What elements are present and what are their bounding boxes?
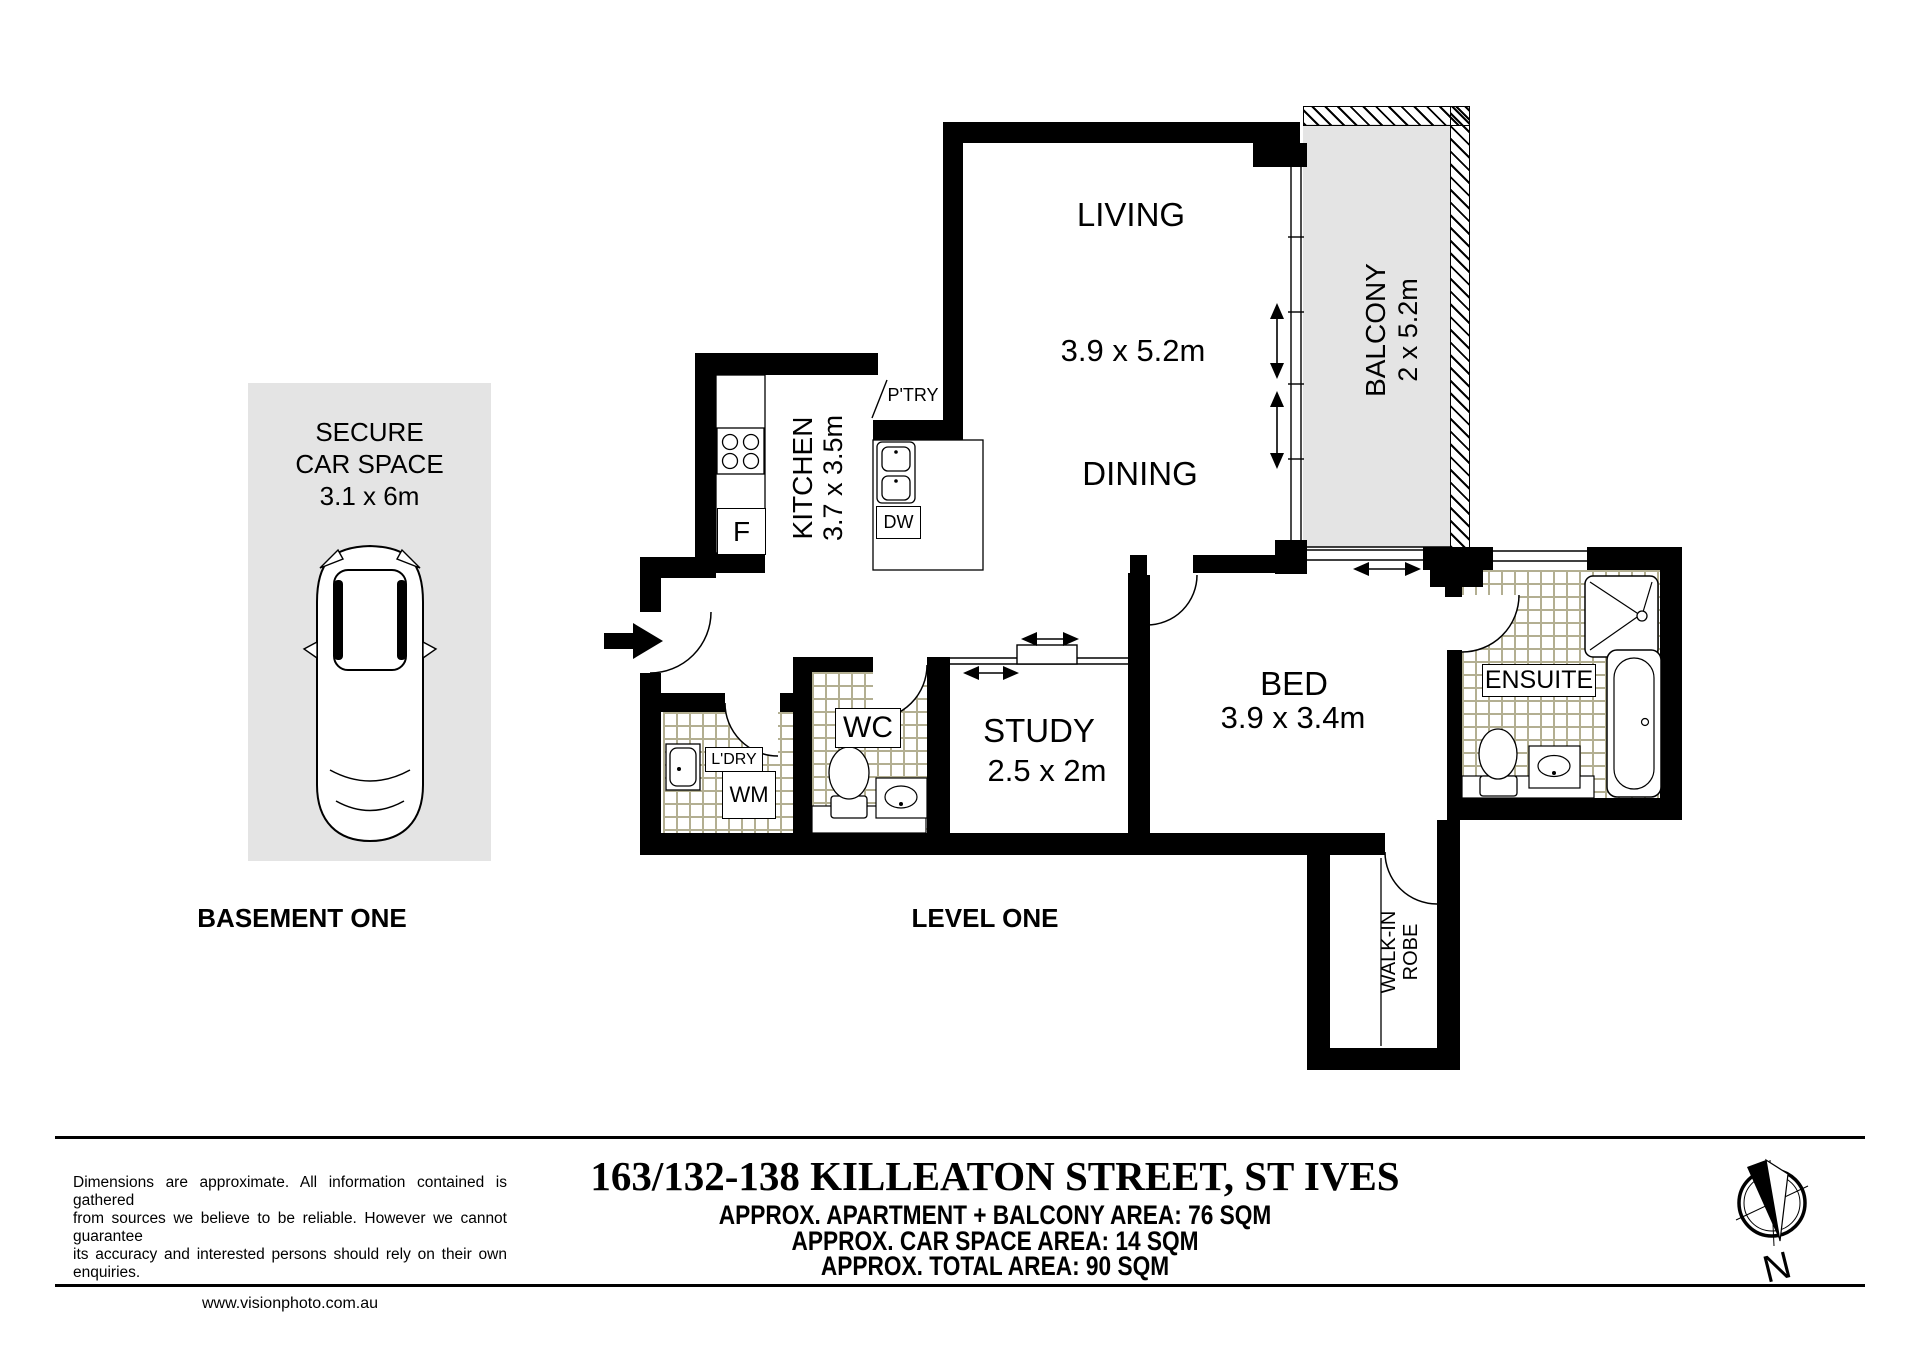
- slider-arrow-balcony-1: [1270, 303, 1284, 379]
- wall: [1447, 650, 1462, 798]
- wall: [1307, 833, 1330, 1070]
- kitchen-label: KITCHEN 3.7 x 3.5m: [786, 393, 850, 563]
- slider-arrow-dining: [1021, 632, 1079, 646]
- wc-label: WC: [835, 708, 901, 748]
- dishwasher-label: DW: [876, 506, 921, 539]
- floorplan-page: N LIVING 3.9 x 5.2m DINING BALCONY 2 x 5…: [0, 0, 1919, 1356]
- balcony-hatch-right: [1450, 106, 1470, 549]
- wall: [793, 657, 873, 672]
- wall: [695, 353, 716, 557]
- study-label: STUDY: [939, 712, 1139, 750]
- fridge-label: F: [717, 508, 766, 555]
- disclaimer-line: its accuracy and interested persons shou…: [73, 1246, 507, 1282]
- wall: [1130, 573, 1147, 595]
- bed-door-arc: [1147, 575, 1197, 625]
- basement-one-label: BASEMENT ONE: [172, 903, 432, 934]
- balcony-hatch-top: [1303, 106, 1470, 126]
- dining-label: DINING: [1015, 455, 1265, 493]
- wall: [1447, 570, 1462, 595]
- entry-arrow-icon: [604, 623, 663, 659]
- level-one-label: LEVEL ONE: [855, 903, 1115, 934]
- footer-top-rule: [55, 1136, 1865, 1139]
- wall: [716, 553, 765, 573]
- kitchen-island: [873, 440, 983, 570]
- wall: [1660, 547, 1682, 820]
- bed-dims: 3.9 x 3.4m: [1168, 700, 1418, 736]
- study-pocket-slider: [950, 645, 1128, 664]
- stove-icon: [717, 428, 764, 474]
- slider-arrow-study: [963, 666, 1019, 680]
- wall: [943, 122, 963, 443]
- study-dims: 2.5 x 2m: [947, 753, 1147, 789]
- laundry-label: L'DRY: [705, 747, 763, 772]
- wall: [695, 353, 878, 375]
- walk-in-robe-label: WALK-IN ROBE: [1377, 872, 1423, 1032]
- wall: [1275, 540, 1307, 574]
- wall: [658, 693, 725, 712]
- wall: [793, 657, 812, 833]
- window-ensuite: [1493, 551, 1587, 561]
- address-title: 163/132-138 KILLEATON STREET, ST IVES: [480, 1152, 1510, 1200]
- slider-arrow-balcony-2: [1270, 391, 1284, 469]
- wall: [1423, 547, 1493, 570]
- living-dims: 3.9 x 5.2m: [1008, 333, 1258, 369]
- bed-door-opening: [1147, 553, 1193, 575]
- window-bed: [1307, 550, 1423, 560]
- living-label: LIVING: [1006, 196, 1256, 234]
- car-space-title: SECURE CAR SPACE 3.1 x 6m: [248, 416, 491, 512]
- area-line: APPROX. TOTAL AREA: 90 SQM: [562, 1254, 1427, 1280]
- balcony-label: BALCONY 2 x 5.2m: [1359, 210, 1425, 450]
- entry-door-arc: [650, 612, 711, 673]
- wall: [1128, 573, 1150, 833]
- area-summary-block: APPROX. APARTMENT + BALCONY AREA: 76 SQM…: [480, 1203, 1510, 1280]
- pantry-label: P'TRY: [882, 385, 944, 406]
- wall: [873, 420, 963, 443]
- disclaimer-block: Dimensions are approximate. All informat…: [73, 1174, 507, 1313]
- wc-floor-tiles: [812, 672, 927, 833]
- wall: [640, 557, 661, 612]
- website-link: www.visionphoto.com.au: [73, 1295, 507, 1313]
- slider-arrow-bed-window: [1353, 562, 1421, 576]
- disclaimer-line: Dimensions are approximate. All informat…: [73, 1174, 507, 1210]
- wall: [1253, 143, 1307, 167]
- ensuite-label: ENSUITE: [1482, 664, 1596, 697]
- wall: [943, 122, 1300, 143]
- disclaimer-line: from sources we believe to be reliable. …: [73, 1210, 507, 1246]
- washing-machine-label: WM: [722, 771, 776, 819]
- kitchen-sink-icon: [877, 442, 915, 503]
- bed-label: BED: [1194, 665, 1394, 703]
- wall: [640, 833, 1385, 855]
- compass-icon: N: [1736, 1160, 1808, 1292]
- wall: [1437, 820, 1460, 1055]
- wall: [1447, 798, 1682, 820]
